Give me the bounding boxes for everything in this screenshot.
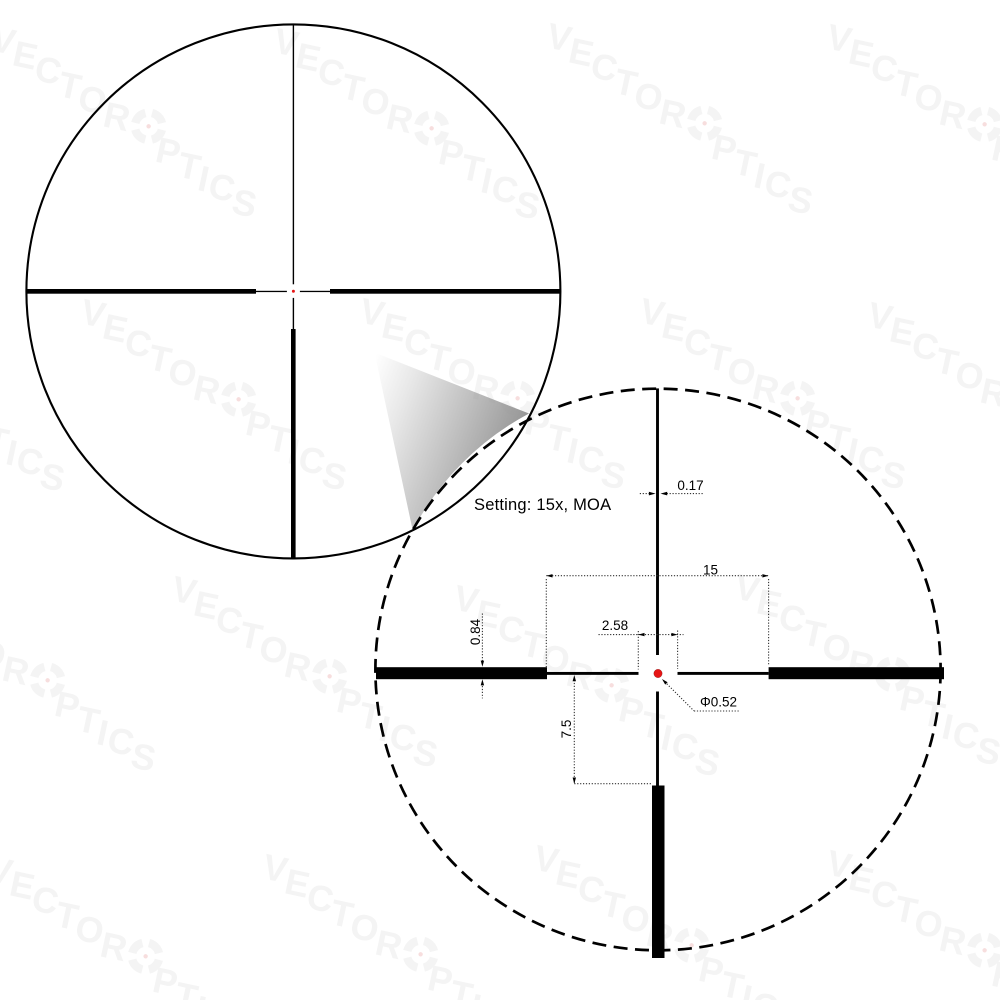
svg-text:7.5: 7.5 <box>559 720 574 739</box>
svg-text:0.17: 0.17 <box>677 478 703 493</box>
svg-text:2.58: 2.58 <box>602 618 628 633</box>
svg-text:Φ0.52: Φ0.52 <box>700 695 737 710</box>
svg-text:15: 15 <box>703 563 718 578</box>
svg-text:Setting: 15x, MOA: Setting: 15x, MOA <box>474 496 611 514</box>
svg-text:0.84: 0.84 <box>468 618 483 645</box>
